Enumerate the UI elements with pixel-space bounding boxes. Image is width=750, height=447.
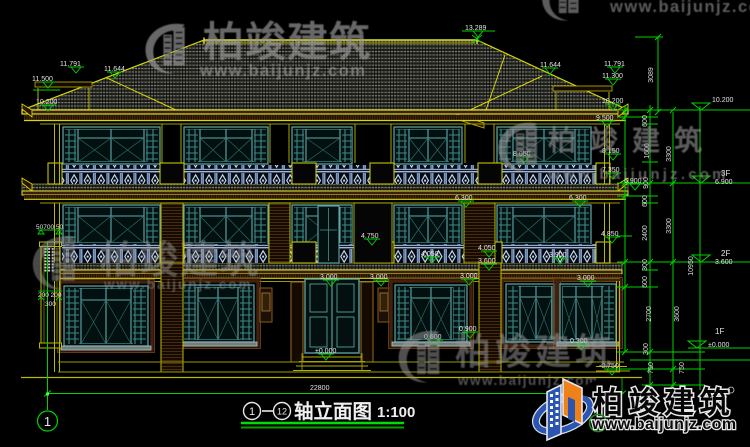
svg-text:www.baijunjz.com: www.baijunjz.com bbox=[609, 0, 750, 16]
svg-text:www.baijunjz.com: www.baijunjz.com bbox=[199, 62, 366, 80]
svg-text:6.300: 6.300 bbox=[455, 195, 473, 202]
svg-text:±0.000: ±0.000 bbox=[708, 342, 729, 349]
svg-text:1: 1 bbox=[249, 406, 255, 418]
svg-text:柏竣建筑: 柏竣建筑 bbox=[455, 331, 615, 372]
svg-text:11.644: 11.644 bbox=[104, 66, 125, 73]
svg-text:3.000: 3.000 bbox=[577, 275, 595, 282]
svg-text:11.644: 11.644 bbox=[540, 62, 561, 69]
svg-text:300: 300 bbox=[643, 343, 650, 355]
svg-text:3.600: 3.600 bbox=[478, 258, 496, 265]
svg-text:11.791: 11.791 bbox=[604, 61, 625, 68]
svg-text:3300: 3300 bbox=[666, 218, 673, 234]
svg-text:2700: 2700 bbox=[646, 306, 653, 322]
svg-text:600: 600 bbox=[642, 276, 649, 288]
svg-text:柏竣建筑: 柏竣建筑 bbox=[100, 240, 260, 282]
svg-text:10.200: 10.200 bbox=[36, 99, 58, 106]
svg-text:13.289: 13.289 bbox=[465, 25, 487, 32]
svg-text:4.750: 4.750 bbox=[361, 233, 379, 240]
svg-text:www.baijunjz.com: www.baijunjz.com bbox=[103, 277, 253, 292]
svg-text:750: 750 bbox=[648, 362, 655, 374]
svg-text:www.baijunjz.com: www.baijunjz.com bbox=[591, 416, 737, 433]
svg-text:11.500: 11.500 bbox=[32, 76, 53, 83]
svg-text:柏竣建筑: 柏竣建筑 bbox=[548, 124, 716, 156]
svg-text:11.791: 11.791 bbox=[60, 61, 81, 68]
svg-text:3600: 3600 bbox=[674, 306, 681, 322]
svg-text:10950: 10950 bbox=[688, 256, 695, 276]
svg-text:3.000: 3.000 bbox=[320, 274, 338, 281]
svg-text:3.600: 3.600 bbox=[715, 259, 733, 266]
svg-text:4.050: 4.050 bbox=[478, 245, 496, 252]
svg-text:200 200: 200 200 bbox=[38, 292, 62, 299]
svg-text:3.900: 3.900 bbox=[549, 252, 567, 259]
svg-text:10.200: 10.200 bbox=[602, 98, 624, 105]
svg-text:600: 600 bbox=[642, 195, 649, 207]
svg-text:柏竣建筑: 柏竣建筑 bbox=[593, 386, 735, 420]
svg-text:±0.000: ±0.000 bbox=[315, 348, 336, 355]
svg-text:1F: 1F bbox=[715, 327, 724, 336]
svg-text:6.300: 6.300 bbox=[569, 195, 587, 202]
svg-text:9.500: 9.500 bbox=[596, 115, 614, 122]
svg-text:柏竣建筑: 柏竣建筑 bbox=[203, 19, 371, 65]
svg-text:300: 300 bbox=[45, 301, 56, 308]
svg-text:1: 1 bbox=[44, 414, 51, 429]
svg-text:22800: 22800 bbox=[310, 385, 330, 392]
svg-text:10.200: 10.200 bbox=[712, 97, 734, 104]
svg-text:www.baijunjz.com: www.baijunjz.com bbox=[547, 166, 729, 183]
svg-text:750: 750 bbox=[679, 362, 686, 374]
svg-text:3.000: 3.000 bbox=[460, 273, 478, 280]
svg-text:3089: 3089 bbox=[648, 67, 655, 83]
svg-text:50700 50: 50700 50 bbox=[36, 224, 63, 231]
svg-text:12: 12 bbox=[277, 407, 287, 417]
svg-text:2F: 2F bbox=[721, 249, 730, 258]
svg-text:轴立面图: 轴立面图 bbox=[294, 400, 372, 423]
svg-text:4.850: 4.850 bbox=[601, 231, 619, 238]
svg-text:3.000: 3.000 bbox=[370, 274, 388, 281]
svg-text:2400: 2400 bbox=[642, 225, 649, 241]
svg-text:1:100: 1:100 bbox=[377, 404, 415, 421]
svg-text:11.300: 11.300 bbox=[602, 73, 623, 80]
svg-text:4.050: 4.050 bbox=[421, 251, 439, 258]
svg-text:300: 300 bbox=[642, 259, 649, 271]
